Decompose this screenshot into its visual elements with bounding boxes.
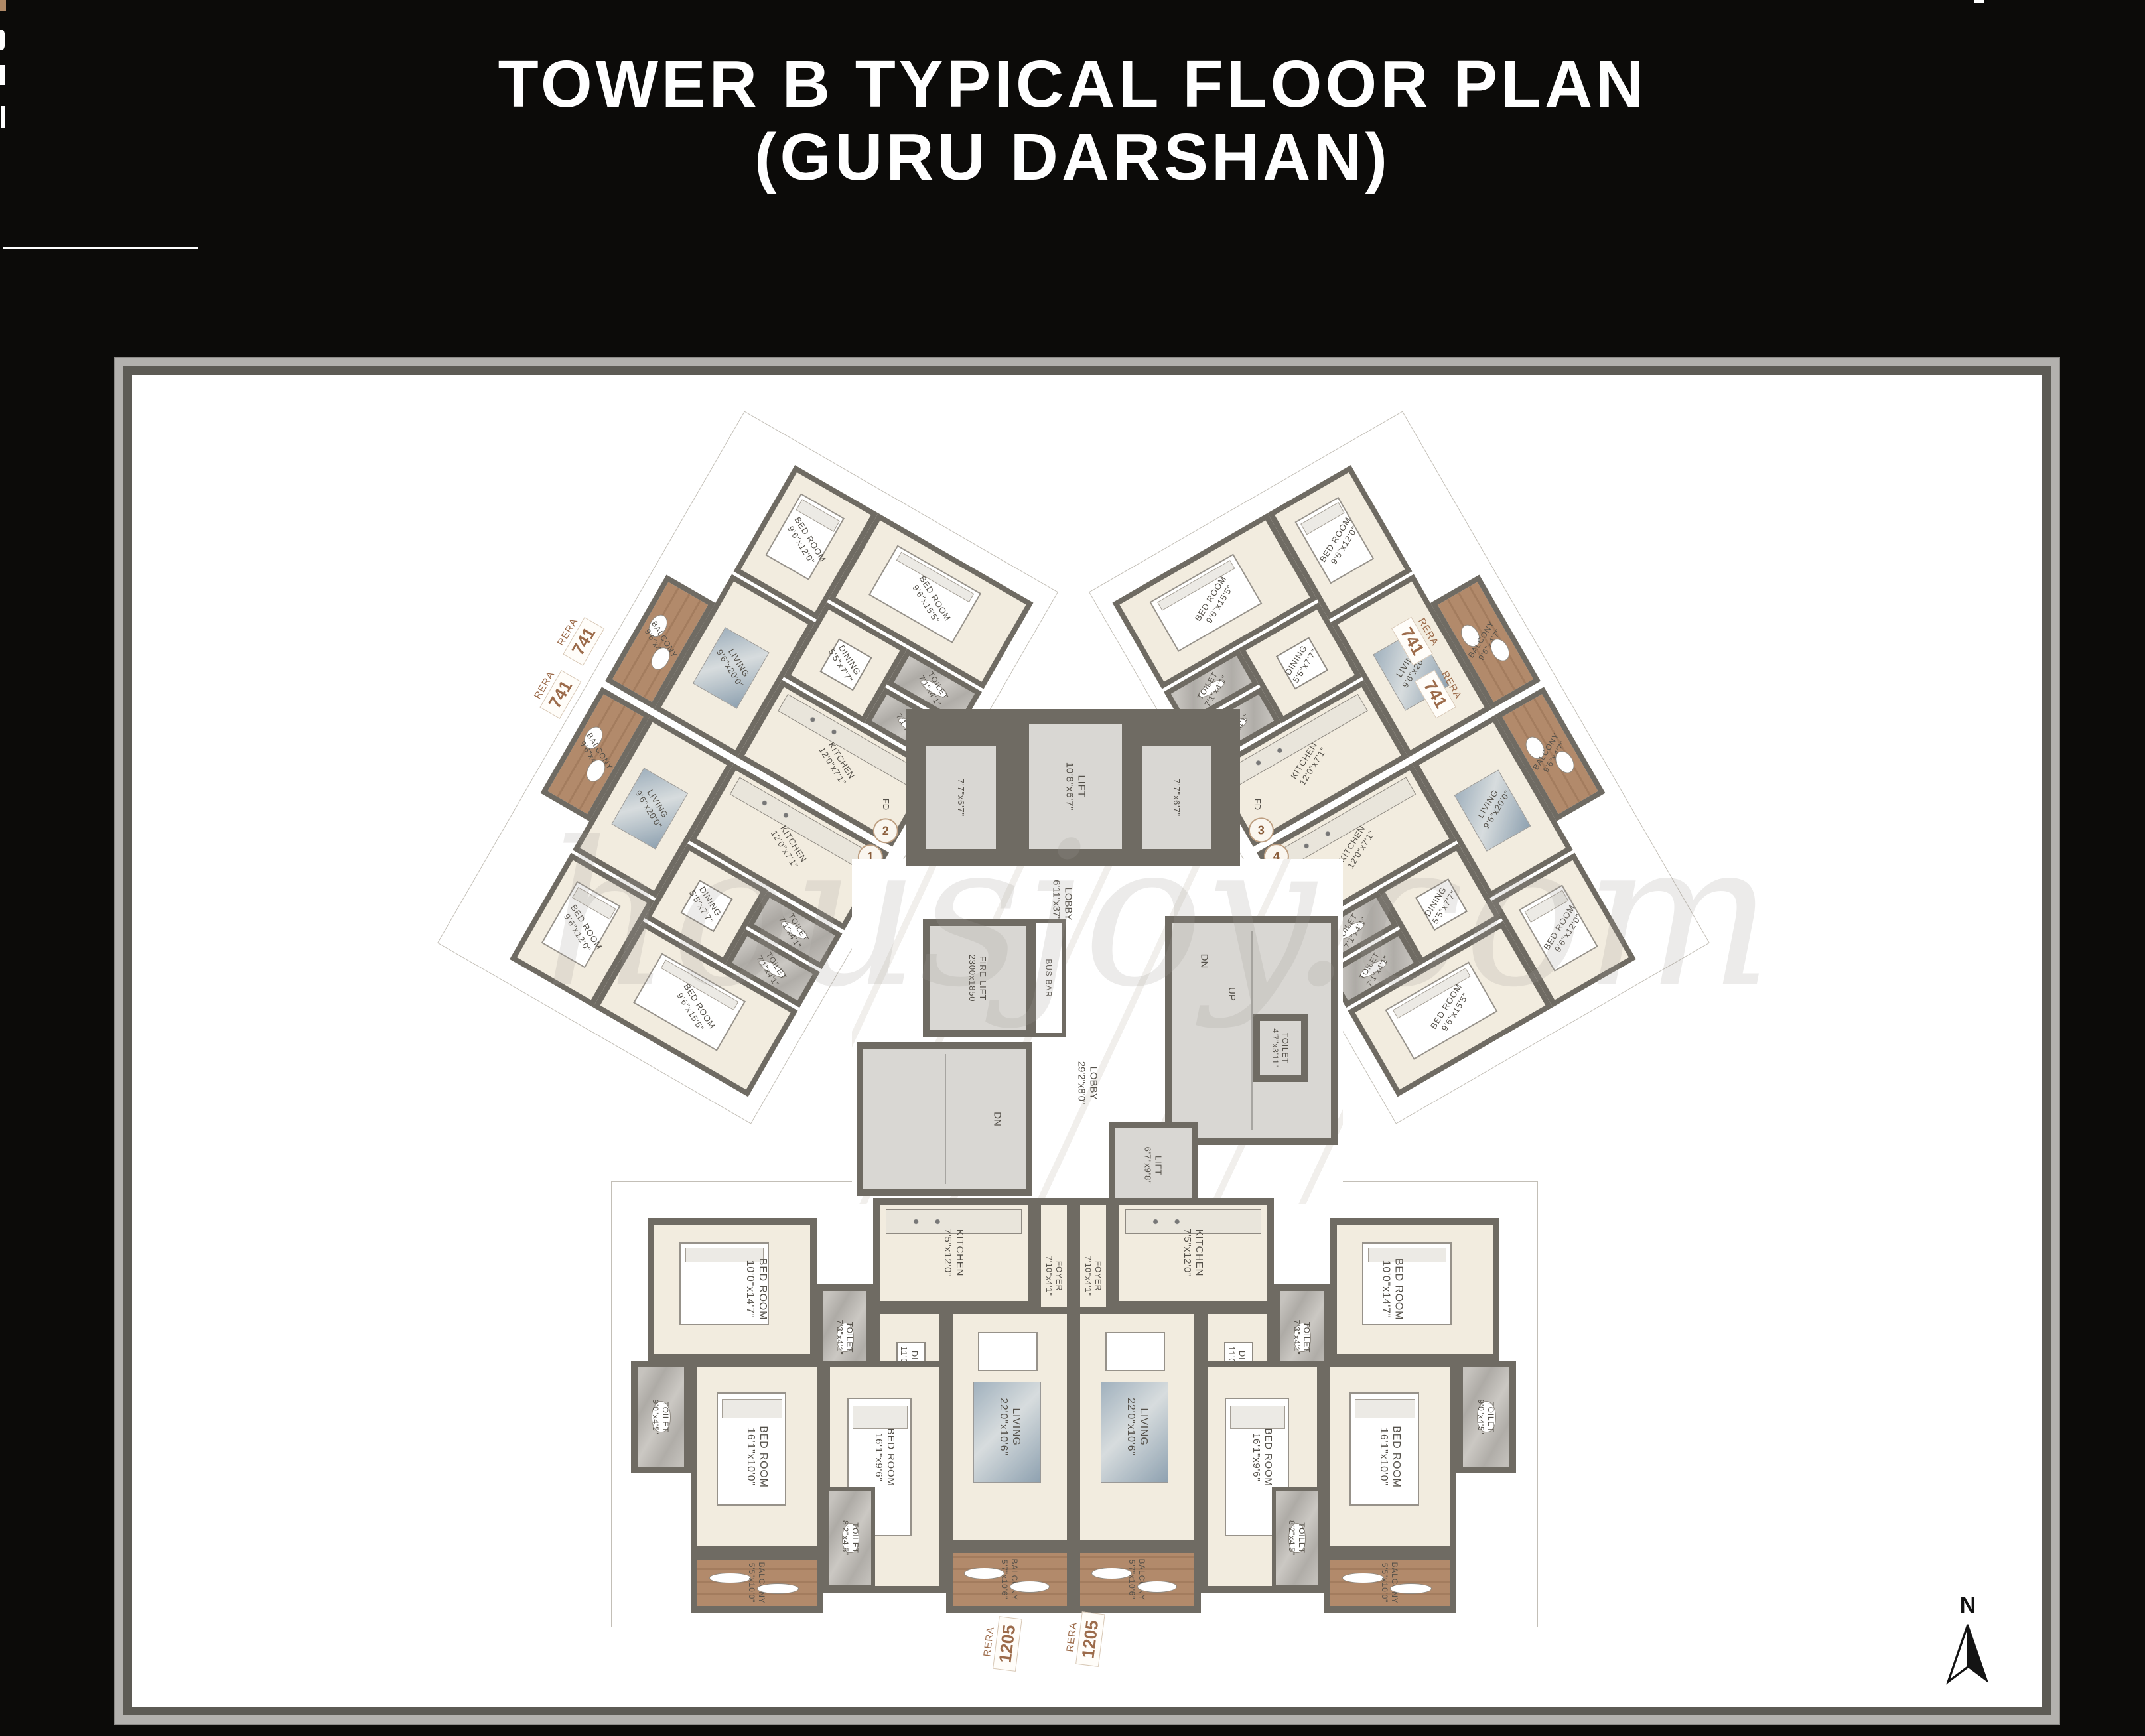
title-line1: TOWER B TYPICAL FLOOR PLAN <box>0 48 2145 121</box>
bed-icon <box>541 880 620 968</box>
unit-number-2: 2 <box>873 818 898 843</box>
logo-divider-line <box>3 247 198 249</box>
sofa-icon <box>978 1332 1038 1370</box>
toilet-icon <box>837 1323 855 1352</box>
title-line2: (GURU DARSHAN) <box>0 121 2145 194</box>
bedroom: BED ROOM10'0"x14'7" <box>1330 1218 1499 1361</box>
bed-icon <box>679 1242 770 1325</box>
kitchen: KITCHEN7'5"x12'0" <box>1113 1198 1274 1307</box>
toilet-icon <box>1294 1323 1312 1352</box>
bed-icon <box>868 545 981 643</box>
lift: 7'7"x6'7" <box>1135 740 1218 856</box>
plan-frame: BED ROOM9'6"x15'5" BED ROOM9'6"x12'0" TO… <box>114 357 2060 1725</box>
plan-frame-inner: BED ROOM9'6"x15'5" BED ROOM9'6"x12'0" TO… <box>123 366 2051 1715</box>
toilet: TOILET8'2"x4'5" <box>825 1487 875 1589</box>
rera-tag: RERA1205 <box>980 1615 1022 1672</box>
bed-icon <box>1349 1392 1419 1506</box>
bed-icon <box>1362 1242 1452 1325</box>
bed-icon <box>1149 553 1262 652</box>
lift-main: LIFT10'8"x6'7" <box>1022 717 1129 856</box>
floor-plan: BED ROOM9'6"x15'5" BED ROOM9'6"x12'0" TO… <box>132 375 2042 1707</box>
edge-speck <box>1974 0 1984 3</box>
fire-lift: FIRE LIFT2300x1850 <box>923 919 1032 1037</box>
toilet-icon <box>1477 1401 1496 1432</box>
bed-icon <box>1518 884 1598 972</box>
north-label: N <box>1928 1593 2008 1619</box>
logo-fragment <box>0 0 6 11</box>
bedroom: BED ROOM16'1"x10'0" <box>1324 1361 1456 1553</box>
bedroom: BED ROOM16'1"x10'0" <box>691 1361 823 1553</box>
toilet-icon <box>1196 677 1227 701</box>
toilet-core: TOILET4'7"x3'11" <box>1253 1014 1308 1082</box>
toilet-icon <box>1288 1523 1306 1553</box>
staircase-right <box>1165 916 1338 1145</box>
lift: 7'7"x6'7" <box>920 740 1003 856</box>
north-arrow: N <box>1928 1593 2008 1692</box>
toilet-icon <box>756 957 788 980</box>
balcony: BALCONY5'5"x10'0" <box>1324 1553 1456 1613</box>
dining-table-icon <box>1275 637 1328 690</box>
rug-icon <box>612 768 689 850</box>
rug-icon <box>1101 1382 1168 1483</box>
kitchen-counter-icon <box>886 1209 1022 1234</box>
dining-table-icon <box>680 880 733 933</box>
dining-table-icon <box>819 638 872 691</box>
living-room: LIVING22'0"x10'6" <box>946 1307 1073 1546</box>
bed-icon <box>1294 497 1374 584</box>
sofa-icon <box>1105 1332 1165 1370</box>
toilet: TOILET9'0"x4'5" <box>631 1361 691 1473</box>
bedroom: BED ROOM10'0"x14'7" <box>648 1218 817 1361</box>
toilet-icon <box>1357 957 1389 980</box>
toilet: TOILET9'0"x4'5" <box>1456 1361 1516 1473</box>
kitchen-counter-icon <box>1125 1209 1261 1234</box>
toilet-icon <box>842 1523 859 1553</box>
staircase-main: DN <box>857 1042 1032 1196</box>
rera-tag: RERA741 <box>552 610 604 666</box>
living-room: LIVING22'0"x10'6" <box>1073 1307 1201 1546</box>
rera-tag: RERA1205 <box>1063 1610 1105 1667</box>
page-title: TOWER B TYPICAL FLOOR PLAN (GURU DARSHAN… <box>0 48 2145 194</box>
balcony: BALCONY5'7"x10'6" <box>946 1546 1073 1613</box>
lift-lower: LIFT6'7"x9'8" <box>1109 1122 1198 1209</box>
unit-number-3: 3 <box>1249 817 1274 842</box>
toilet-icon <box>652 1401 671 1432</box>
toilet-icon <box>918 676 949 700</box>
balcony: BALCONY5'5"x10'0" <box>691 1553 823 1613</box>
bus-bar: BUS BAR <box>1032 919 1066 1037</box>
toilet-icon <box>779 918 810 942</box>
compass-icon <box>1938 1619 1998 1688</box>
logo-fragment <box>0 30 5 50</box>
kitchen: KITCHEN7'5"x12'0" <box>873 1198 1034 1307</box>
toilet: TOILET8'2"x4'5" <box>1272 1487 1322 1589</box>
bed-icon <box>717 1392 786 1506</box>
bed-icon <box>765 493 845 580</box>
bed-icon <box>1385 961 1497 1060</box>
rug-icon <box>693 627 770 709</box>
dining-table-icon <box>1415 878 1468 931</box>
rug-icon <box>1454 769 1531 852</box>
balcony: BALCONY5'7"x10'6" <box>1073 1546 1201 1613</box>
rug-icon <box>973 1382 1041 1483</box>
